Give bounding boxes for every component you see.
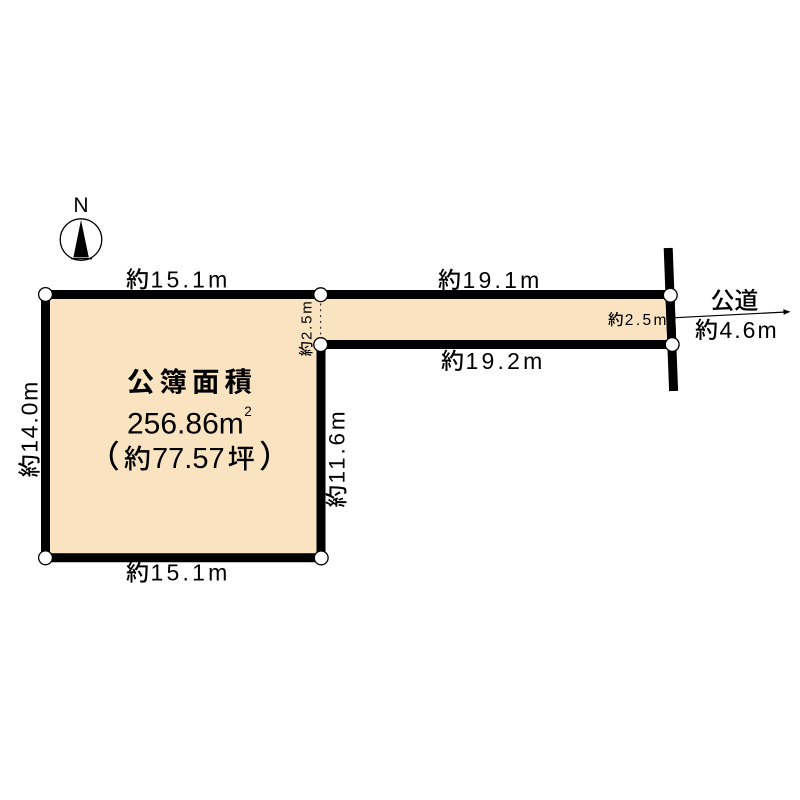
svg-text:2: 2 xyxy=(244,404,252,419)
svg-text:2.5m: 2.5m xyxy=(625,312,669,329)
svg-text:N: N xyxy=(73,194,88,217)
svg-text:19.1m: 19.1m xyxy=(463,267,543,293)
svg-text:11.6m: 11.6m xyxy=(325,409,350,484)
svg-text:19.2m: 19.2m xyxy=(466,348,546,374)
svg-text:77.57: 77.57 xyxy=(152,443,225,475)
svg-text:15.1m: 15.1m xyxy=(151,267,231,293)
svg-text:4.6m: 4.6m xyxy=(720,317,779,343)
svg-text:256.86m: 256.86m xyxy=(127,408,244,441)
svg-text:2.5m: 2.5m xyxy=(298,299,315,340)
svg-text:15.1m: 15.1m xyxy=(151,560,231,586)
svg-text:14.0m: 14.0m xyxy=(17,380,43,453)
